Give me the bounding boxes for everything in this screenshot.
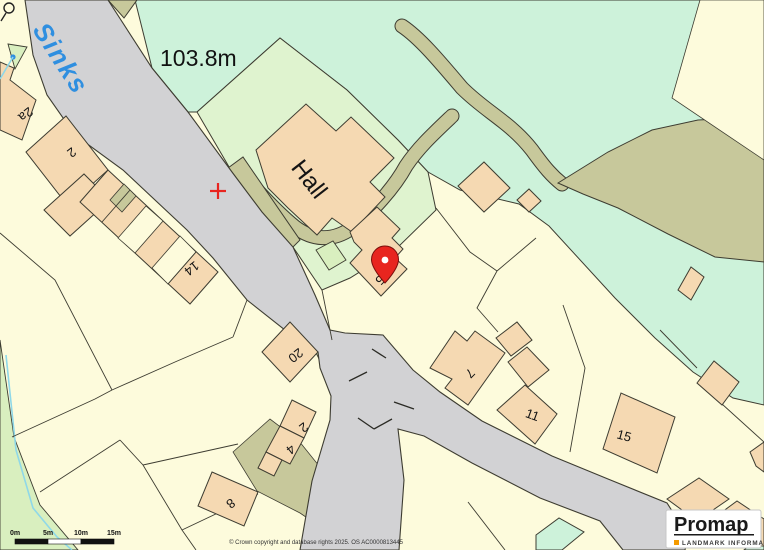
scale-label-0: 0m [10, 530, 20, 537]
logo-bullet-icon [674, 540, 679, 545]
scale-label-10: 10m [74, 530, 88, 537]
copyright-text: © Crown copyright and database rights 20… [229, 539, 404, 546]
scale-label-15: 15m [107, 530, 121, 537]
scale-label-5: 5m [43, 530, 53, 537]
spot-height-label: 103.8m [160, 45, 237, 71]
map-canvas[interactable]: Sinks 103.8m Hall 2a 2 14 20 2 4 8 5 7 1… [0, 0, 764, 550]
logo-tagline: LANDMARK INFORMATION [682, 540, 764, 547]
logo-underline [674, 534, 754, 536]
promap-logo: Promap LANDMARK INFORMATION [666, 510, 764, 548]
logo-brand-text: Promap [674, 514, 748, 536]
map-viewport[interactable]: Sinks 103.8m Hall 2a 2 14 20 2 4 8 5 7 1… [0, 0, 764, 550]
